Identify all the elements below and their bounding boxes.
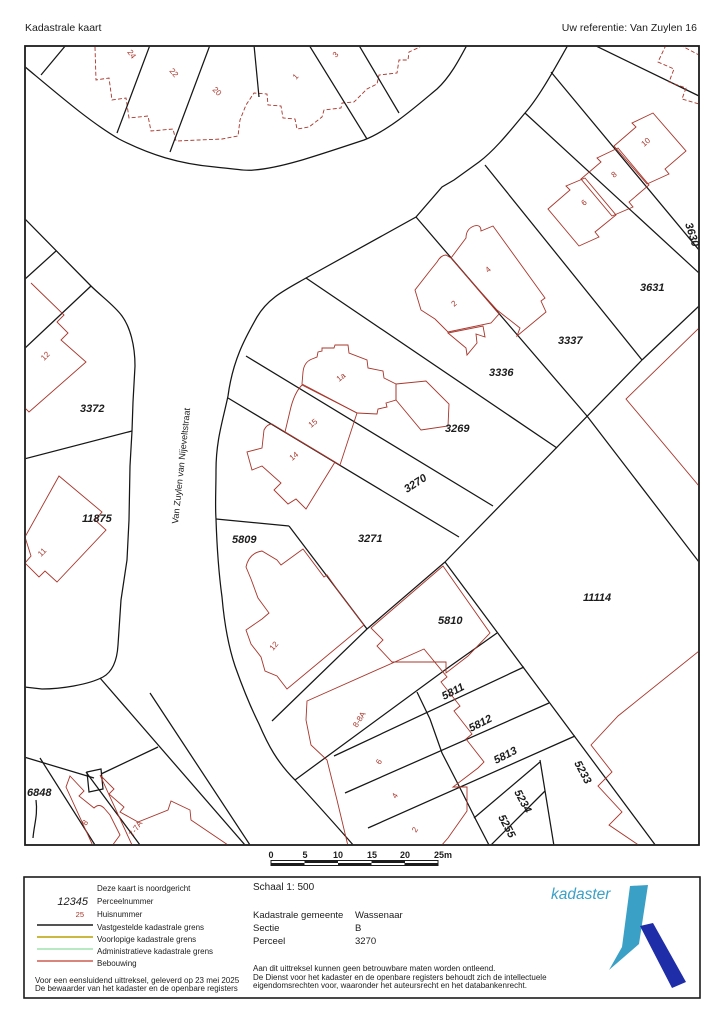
svg-text:5811: 5811 (440, 681, 467, 702)
svg-text:Van Zuylen van Nijeveltstraat: Van Zuylen van Nijeveltstraat (170, 407, 192, 524)
svg-text:6: 6 (374, 757, 384, 766)
svg-text:11875: 11875 (82, 513, 113, 525)
svg-text:Kadastrale gemeente: Kadastrale gemeente (253, 910, 343, 921)
svg-text:0: 0 (268, 850, 273, 860)
svg-text:5812: 5812 (467, 713, 494, 735)
svg-text:12: 12 (268, 639, 281, 652)
svg-text:3270: 3270 (402, 472, 430, 496)
svg-text:3336: 3336 (489, 367, 514, 379)
svg-text:6: 6 (580, 197, 590, 207)
svg-text:12: 12 (39, 349, 52, 362)
svg-text:Sectie: Sectie (253, 923, 279, 934)
svg-text:14: 14 (288, 450, 301, 463)
svg-text:Administratieve kadastrale gre: Administratieve kadastrale grens (97, 947, 213, 956)
svg-text:Vastgestelde kadastrale grens: Vastgestelde kadastrale grens (97, 923, 204, 932)
svg-text:8: 8 (610, 169, 620, 179)
svg-text:4: 4 (484, 264, 494, 274)
svg-text:25: 25 (76, 910, 84, 919)
svg-text:B: B (355, 923, 361, 934)
svg-text:5: 5 (302, 850, 307, 860)
svg-text:Aan dit uittreksel kunnen geen: Aan dit uittreksel kunnen geen betrouwba… (253, 964, 495, 973)
svg-text:3271: 3271 (358, 533, 382, 545)
svg-text:Uw referentie: Van Zuylen 16: Uw referentie: Van Zuylen 16 (562, 22, 697, 34)
svg-text:11114: 11114 (583, 592, 611, 604)
svg-text:3270: 3270 (355, 936, 376, 947)
svg-text:5813: 5813 (492, 745, 519, 767)
svg-text:3: 3 (331, 50, 341, 60)
svg-text:10: 10 (333, 850, 343, 860)
svg-text:20: 20 (400, 850, 410, 860)
svg-text:2: 2 (410, 825, 420, 834)
svg-text:15: 15 (307, 417, 320, 430)
svg-text:3372: 3372 (80, 403, 104, 415)
svg-text:5233: 5233 (571, 759, 593, 786)
svg-text:4: 4 (390, 791, 400, 800)
svg-text:6848: 6848 (27, 787, 52, 799)
svg-text:3269: 3269 (445, 423, 470, 435)
svg-text:2: 2 (450, 298, 460, 308)
svg-text:Deze kaart is noordgericht: Deze kaart is noordgericht (97, 884, 191, 893)
svg-text:Voorlopige kadastrale grens: Voorlopige kadastrale grens (97, 935, 196, 944)
svg-text:5810: 5810 (438, 615, 463, 627)
svg-text:3337: 3337 (558, 335, 583, 347)
svg-text:12345: 12345 (57, 896, 88, 908)
svg-text:De bewaarder van het kadaster: De bewaarder van het kadaster en de open… (35, 984, 238, 993)
svg-text:3631: 3631 (640, 282, 664, 294)
svg-text:11: 11 (36, 546, 49, 559)
svg-text:8-8A: 8-8A (351, 709, 368, 729)
svg-text:Huisnummer: Huisnummer (97, 910, 143, 919)
svg-text:20: 20 (211, 85, 224, 98)
svg-text:7-7A: 7-7A (127, 819, 144, 839)
svg-text:1: 1 (291, 72, 301, 82)
svg-text:22: 22 (167, 67, 180, 80)
svg-text:Perceel: Perceel (253, 936, 285, 947)
svg-text:15: 15 (367, 850, 377, 860)
svg-text:eigendomsrechten voor, waarond: eigendomsrechten voor, waaronder het aut… (253, 981, 527, 990)
svg-text:10: 10 (640, 136, 653, 149)
svg-text:Schaal 1: 500: Schaal 1: 500 (253, 882, 315, 893)
svg-text:Kadastrale kaart: Kadastrale kaart (25, 22, 102, 34)
svg-text:25m: 25m (434, 850, 452, 860)
svg-text:1a: 1a (335, 371, 348, 384)
svg-text:5809: 5809 (232, 534, 257, 546)
svg-text:Perceelnummer: Perceelnummer (97, 897, 154, 906)
svg-text:8: 8 (80, 818, 90, 827)
svg-text:Bebouwing: Bebouwing (97, 959, 137, 968)
svg-text:5234: 5234 (511, 788, 533, 815)
svg-text:24: 24 (125, 48, 138, 61)
svg-text:Wassenaar: Wassenaar (355, 910, 403, 921)
svg-text:kadaster: kadaster (551, 886, 611, 903)
